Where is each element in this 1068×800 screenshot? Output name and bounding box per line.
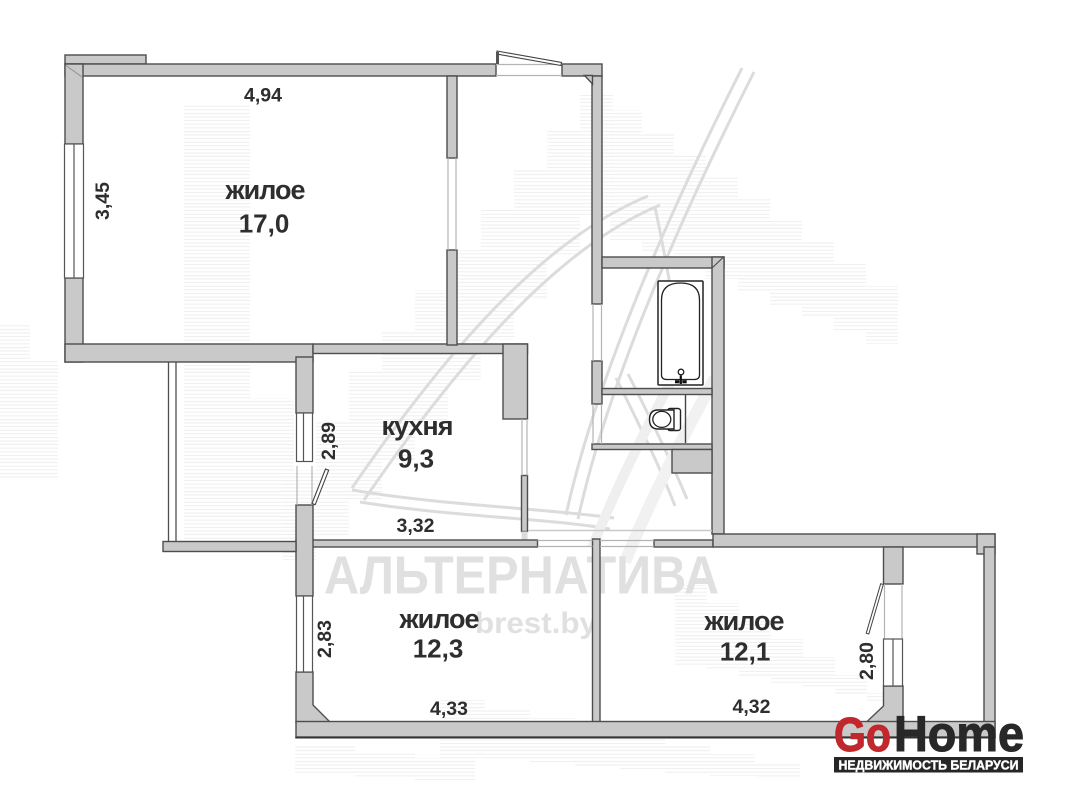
svg-text:4,94: 4,94: [244, 85, 282, 107]
svg-text:кухня: кухня: [382, 411, 453, 441]
svg-text:12,3: 12,3: [413, 634, 464, 664]
svg-text:4,33: 4,33: [430, 698, 468, 720]
svg-text:жилое: жилое: [703, 606, 784, 636]
svg-text:АЛЬТЕРНАТИВА: АЛЬТЕРНАТИВА: [324, 546, 719, 606]
svg-text:Go: Go: [834, 709, 891, 762]
svg-text:2,83: 2,83: [314, 620, 336, 658]
svg-text:2,89: 2,89: [318, 422, 340, 460]
svg-text:3,32: 3,32: [397, 515, 435, 537]
svg-text:12,1: 12,1: [720, 637, 771, 667]
svg-text:жилое: жилое: [224, 175, 305, 205]
svg-text:Home: Home: [894, 706, 1024, 762]
svg-text:9,3: 9,3: [398, 444, 434, 474]
svg-text:17,0: 17,0: [239, 209, 290, 239]
svg-text:4,32: 4,32: [733, 696, 771, 718]
svg-text:жилое: жилое: [398, 604, 479, 634]
svg-text:НЕДВИЖИМОСТЬ БЕЛАРУСИ: НЕДВИЖИМОСТЬ БЕЛАРУСИ: [839, 759, 1019, 773]
svg-text:3,45: 3,45: [92, 182, 114, 220]
svg-text:brest.by: brest.by: [475, 607, 597, 640]
svg-text:2,80: 2,80: [856, 642, 878, 680]
